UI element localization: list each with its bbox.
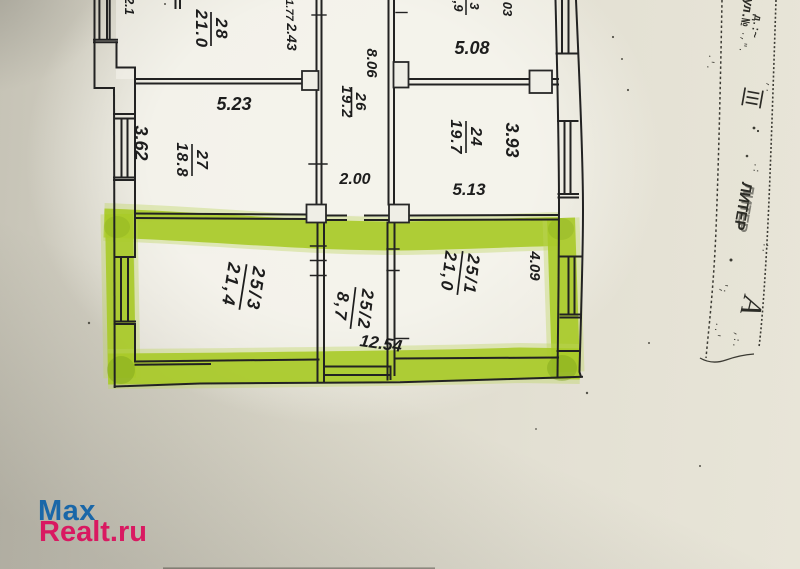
svg-text:.'.: .'.: [704, 53, 717, 71]
svg-text:8,7: 8,7: [330, 291, 352, 323]
svg-text:3.62: 3.62: [131, 125, 151, 160]
svg-text:..': ..': [711, 321, 724, 339]
svg-text:.,".: .,".: [736, 30, 750, 53]
svg-text:4.09: 4.09: [526, 250, 543, 281]
svg-text:5.23: 5.23: [216, 94, 251, 114]
svg-text:5.13: 5.13: [452, 180, 486, 199]
svg-text:19.7: 19.7: [447, 119, 464, 154]
svg-text:2.1: 2.1: [122, 0, 137, 15]
svg-text:28: 28: [212, 17, 231, 40]
svg-text:,.: ,.: [763, 82, 775, 94]
svg-text:19.2: 19.2: [338, 85, 355, 118]
svg-text:2.43: 2.43: [284, 22, 300, 50]
svg-text:03: 03: [500, 2, 515, 17]
svg-text:';: ';: [717, 282, 729, 294]
svg-text::.: :.: [759, 242, 771, 254]
svg-text:24: 24: [467, 126, 484, 147]
svg-text:А: А: [733, 291, 770, 319]
svg-text:27: 27: [193, 149, 210, 170]
svg-text:18.8: 18.8: [173, 142, 190, 177]
svg-text:3.93: 3.93: [502, 122, 522, 157]
svg-text:1.77: 1.77: [283, 0, 295, 22]
svg-text:3: 3: [467, 2, 482, 10]
svg-text:.:: .:: [750, 162, 762, 174]
svg-text:,9: ,9: [451, 0, 466, 12]
svg-text:5.08: 5.08: [454, 38, 489, 58]
svg-text:,:.: ,:.: [730, 331, 743, 349]
svg-text:8.06: 8.06: [363, 48, 380, 78]
svg-text:2.00: 2.00: [338, 171, 370, 188]
svg-text:21.0: 21.0: [192, 8, 211, 48]
